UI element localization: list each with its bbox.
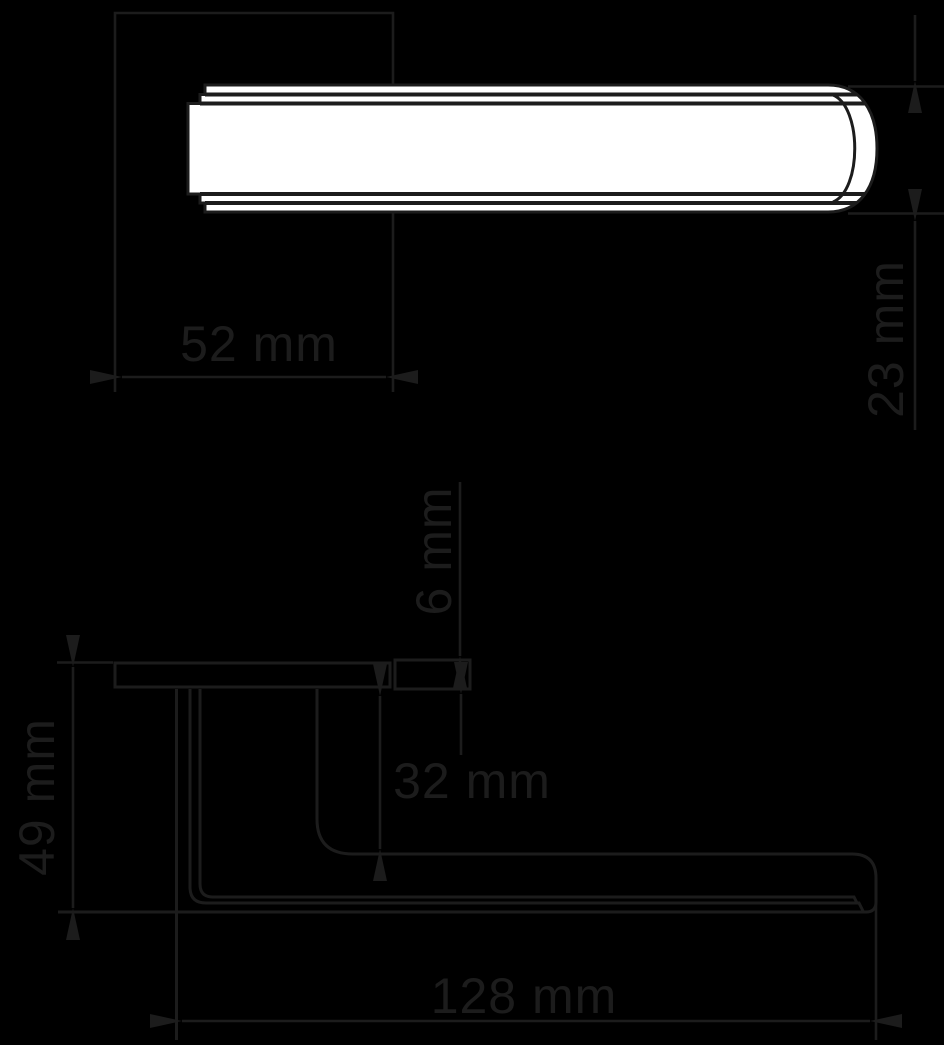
dim-label-32mm: 32 mm (393, 753, 551, 809)
dimension-49mm: 49 mm (9, 663, 113, 909)
rosette-side (115, 660, 470, 689)
dim-label-6mm: 6 mm (406, 487, 462, 616)
side-view: 6 mm 32 mm 49 mm 128 mm (9, 482, 876, 1040)
handle-top-silhouette (188, 85, 877, 212)
dimension-32mm: 32 mm (380, 696, 551, 849)
top-view: 52 mm 23 mm (115, 13, 944, 430)
dim-label-49mm: 49 mm (9, 718, 65, 876)
dim-label-52mm: 52 mm (180, 316, 338, 372)
dim-label-128mm: 128 mm (431, 968, 618, 1024)
dimension-128mm: 128 mm (182, 877, 876, 1040)
dimension-6mm: 6 mm (406, 482, 462, 755)
dimension-52mm: 52 mm (122, 316, 386, 377)
dimension-23mm: 23 mm (858, 15, 915, 430)
dimension-drawing: 52 mm 23 mm 6 mm (0, 0, 944, 1045)
dim-label-23mm: 23 mm (858, 260, 914, 418)
